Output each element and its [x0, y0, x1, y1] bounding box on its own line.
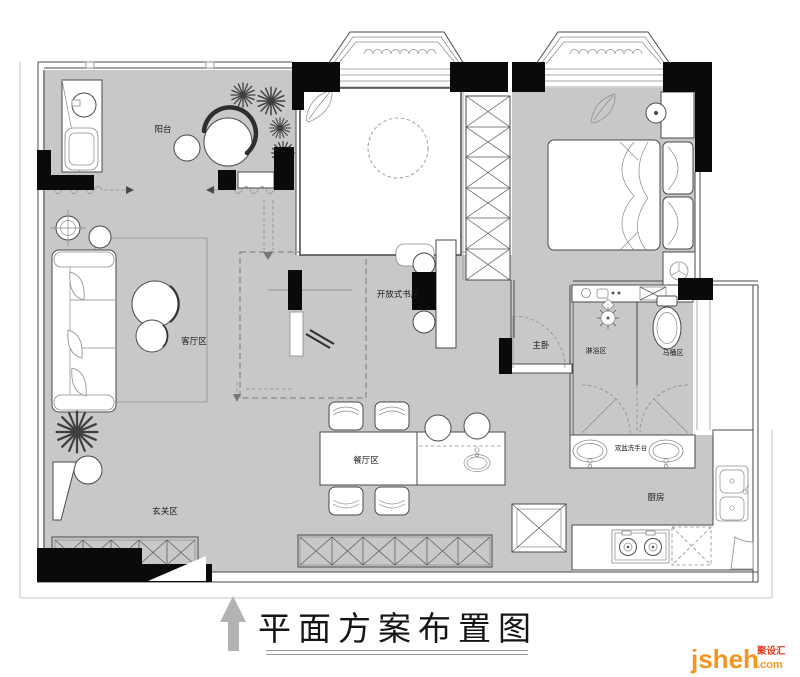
bar-stool-icon: [425, 415, 451, 441]
toilet-icon: [653, 296, 681, 349]
label-living: 客厅区: [181, 336, 207, 346]
floor-plan-canvas: 阳台 客厅区 玄关区 餐厅区 开放式书房 主卧 淋浴区 马桶区 双盆洗手台 厨房…: [0, 0, 800, 677]
page-title: 平面方案布置图: [258, 611, 538, 648]
storage-box-icon: [512, 504, 566, 552]
corner-cabinet: [731, 537, 753, 569]
watermark-brand: jsheh: [690, 644, 759, 674]
north-arrow-icon: [220, 596, 246, 651]
plant-icon: [231, 83, 255, 107]
stool-icon: [74, 456, 102, 484]
shelf-icon: [290, 312, 303, 356]
bay-window-sill-right: [545, 69, 663, 87]
plant-icon: [257, 87, 285, 115]
watermark-logo: jsheh 聚设汇 .com: [690, 644, 786, 674]
bay-window-right: [536, 32, 670, 64]
label-study: 开放式书房: [377, 289, 420, 299]
sofa-icon: [52, 250, 116, 412]
kitchen-sink-icon: [716, 466, 749, 521]
label-balcony: 阳台: [154, 124, 171, 134]
watermark-cn: 聚设汇: [756, 645, 786, 657]
label-entry: 玄关区: [152, 506, 178, 516]
tatami-room: [300, 88, 461, 255]
dining-chair-icon: [375, 402, 409, 430]
watermark-tld: .com: [757, 659, 783, 671]
label-master-bedroom: 主卧: [532, 340, 550, 350]
bay-window-sill-left: [340, 69, 450, 87]
desk-chair-icon: [413, 253, 435, 275]
plant-icon: [270, 118, 290, 138]
dining-chair-icon: [375, 487, 409, 515]
label-shower: 淋浴区: [586, 346, 607, 355]
bar-stool-icon: [464, 413, 490, 439]
island-counter: [417, 432, 505, 485]
desk-icon: [436, 240, 456, 348]
dining-chair-icon: [329, 487, 363, 515]
plant-icon: [57, 412, 98, 453]
bay-window-left: [328, 32, 464, 64]
stove-icon: [612, 530, 669, 563]
label-dining: 餐厅区: [353, 455, 379, 465]
plan-footer: 平面方案布置图: [220, 596, 538, 655]
label-kitchen: 厨房: [647, 492, 664, 502]
label-vanity: 双盆洗手台: [615, 443, 648, 452]
stool-icon: [89, 226, 111, 248]
desk-chair-icon: [413, 311, 435, 333]
washing-machine-icon: [62, 80, 102, 172]
label-toilet: 马桶区: [663, 348, 684, 357]
dining-chair-icon: [329, 402, 363, 430]
